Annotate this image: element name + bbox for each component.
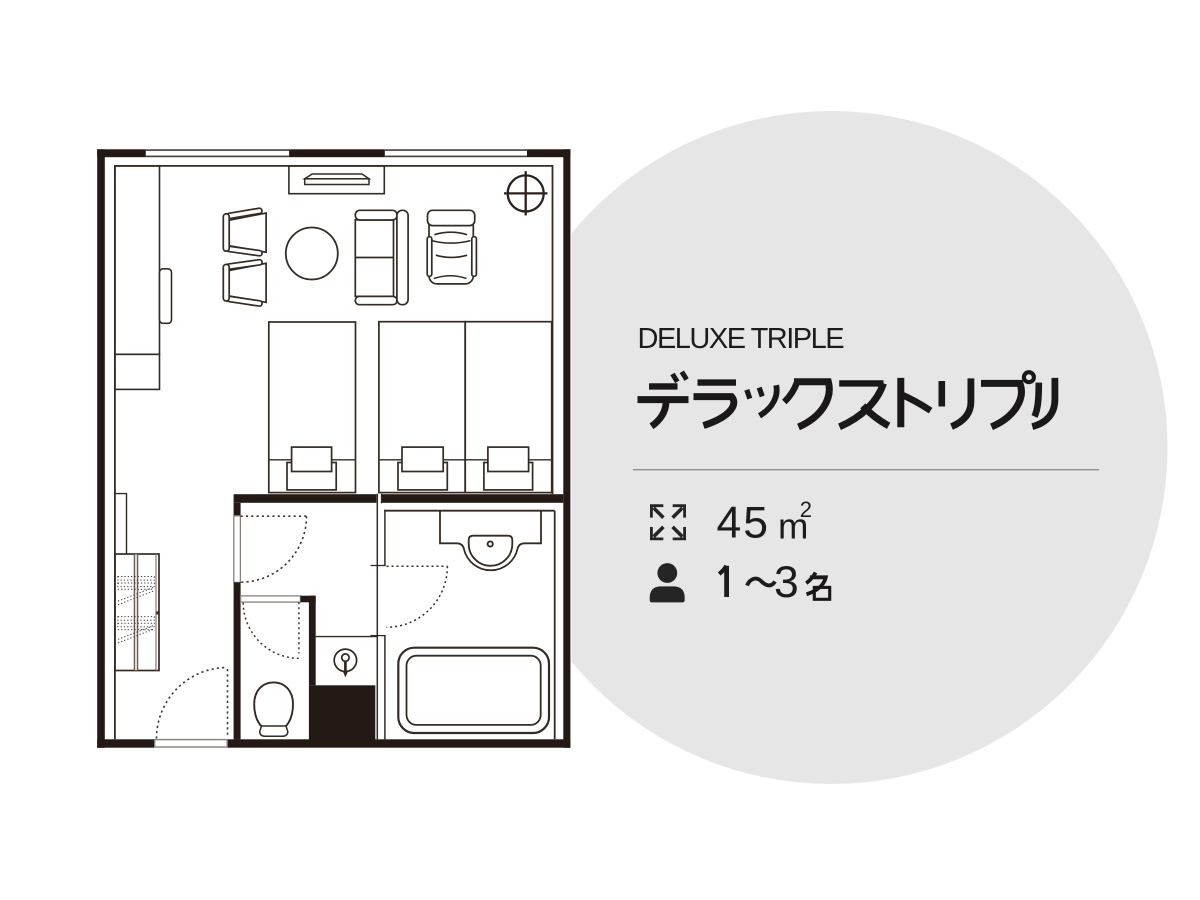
svg-text:DELUXE TRIPLE: DELUXE TRIPLE <box>638 323 845 355</box>
svg-text:3: 3 <box>774 558 799 607</box>
svg-text:2: 2 <box>800 497 812 522</box>
svg-text:45: 45 <box>717 499 771 548</box>
